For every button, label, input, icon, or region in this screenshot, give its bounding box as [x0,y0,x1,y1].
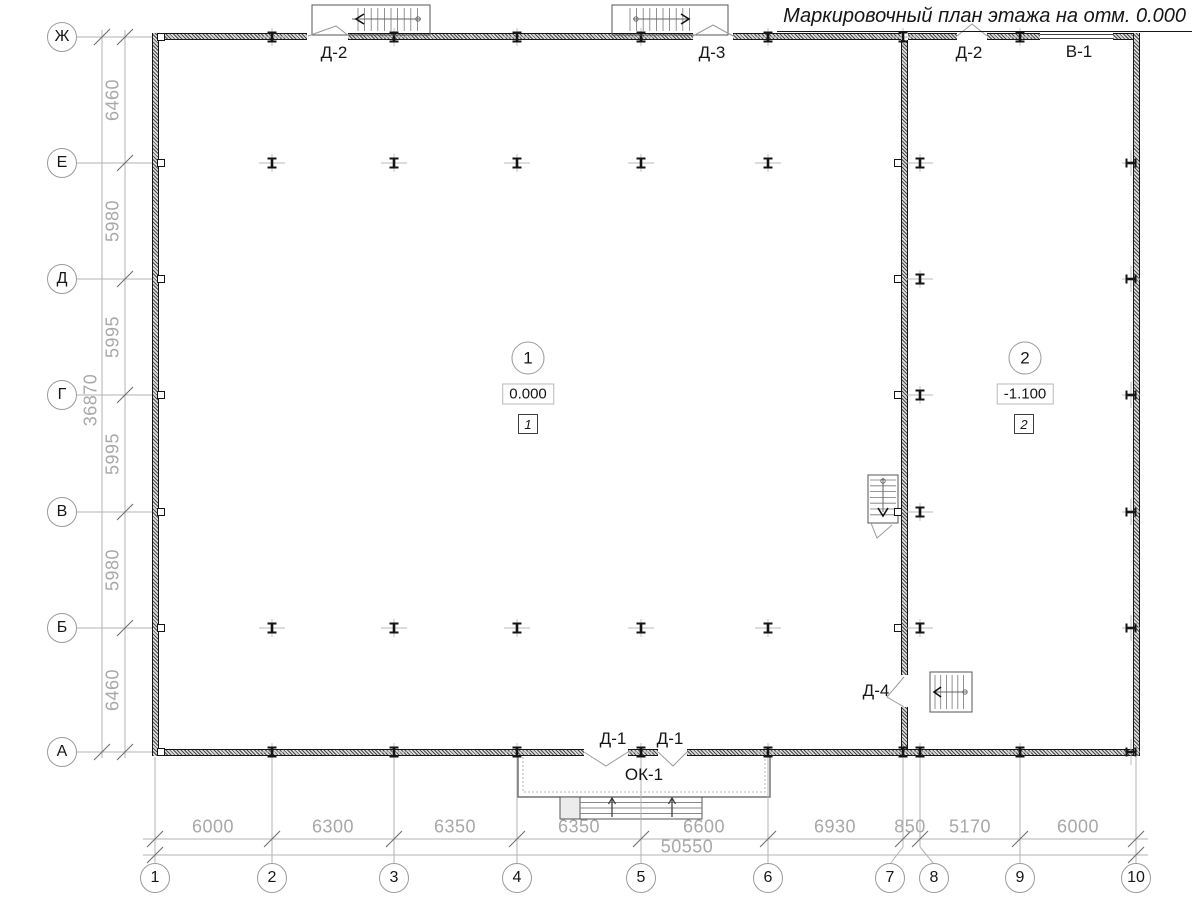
row-axis-bubble-Е: Е [47,148,77,178]
door-swing-top-mid [693,25,733,36]
v-dim-text: 5980 [103,549,124,591]
wall-column-square [894,275,902,283]
h-dim-text: 5170 [949,817,991,838]
door-swing-bottom-left [584,752,628,766]
v-dim-text: 6460 [103,669,124,711]
drawing-title: Маркировочный план этажа на отм. 0.000 [777,5,1192,32]
col-axis-bubble-2: 2 [257,863,287,893]
column-ibeam-marker [259,619,285,637]
column-ibeam-marker [907,270,933,288]
room-tag-box: 2 [1014,414,1034,434]
row-axis-bubble-Д: Д [47,264,77,294]
column-ibeam-marker [381,154,407,172]
row-axis-bubble-Г: Г [47,380,77,410]
column-ibeam-marker [1122,739,1140,765]
column-ibeam-marker [755,619,781,637]
column-ibeam-marker [504,619,530,637]
h-dim-text: 6000 [192,817,234,838]
column-ibeam-marker [628,743,654,761]
h-dim-text: 6300 [312,817,354,838]
wall-column-square [894,391,902,399]
column-ibeam-marker [755,743,781,761]
v-dim-text: 5995 [103,433,124,475]
porch-step-arrow [669,798,676,817]
window-v1 [1040,35,1113,39]
column-ibeam-marker [1122,266,1140,292]
column-ibeam-marker [259,154,285,172]
wall-column-square [894,624,902,632]
door-label-top-mid: Д-3 [699,43,726,63]
col-axis-bubble-8: 8 [919,863,949,893]
column-ibeam-marker [1122,382,1140,408]
column-ibeam-marker [1122,499,1140,525]
room-elevation-box: -1.100 [997,384,1054,405]
porch-step-arrow [609,798,616,817]
v-dim-text: 5995 [103,316,124,358]
wall-column-square [157,159,165,167]
col-axis-bubble-6: 6 [753,863,783,893]
stair-top-right [612,5,728,35]
floor-plan-canvas: ЖЕДГВБА123456789106460598059955995598064… [0,0,1200,900]
wall-column-square [157,748,165,756]
column-ibeam-marker [907,743,933,761]
wall-column-square [157,275,165,283]
column-ibeam-marker [381,743,407,761]
wall-column-square [157,624,165,632]
row-axis-bubble-В: В [47,497,77,527]
column-ibeam-marker [381,28,407,46]
room-tag-box: 1 [518,414,538,434]
column-ibeam-marker [504,743,530,761]
column-ibeam-marker [1007,743,1033,761]
stair-bottom-right [930,672,972,712]
entrance-label-ok1: ОК-1 [625,765,663,785]
column-ibeam-marker [628,619,654,637]
h-dim-text: 6000 [1057,817,1099,838]
door-swing-bottom-right [658,752,687,766]
column-ibeam-marker [1122,615,1140,641]
col-axis-bubble-9: 9 [1005,863,1035,893]
h-dim-text: 6350 [434,817,476,838]
column-ibeam-marker [1122,150,1140,176]
door-label-bottom-left: Д-1 [600,729,627,749]
col-axis-bubble-1: 1 [140,863,170,893]
door-swing-mid-stair [871,523,892,538]
room-number-bubble: 1 [512,342,545,375]
wall-column-square [157,391,165,399]
column-ibeam-marker [504,154,530,172]
window-label-v1: В-1 [1066,42,1092,62]
wall-column-square [157,33,165,41]
column-ibeam-marker [381,619,407,637]
door-label-top-left: Д-2 [321,43,348,63]
row-axis-bubble-Ж: Ж [47,22,77,52]
column-ibeam-marker [259,743,285,761]
h-dim-text: 6600 [683,817,725,838]
v-dim-total-text: 36870 [81,374,102,427]
room-elevation-box: 0.000 [502,384,554,405]
h-dim-text: 6350 [558,817,600,838]
row-axis-bubble-Б: Б [47,613,77,643]
wall-column-square [894,159,902,167]
door-label-interior-d4: Д-4 [863,681,890,701]
col-axis-bubble-4: 4 [502,863,532,893]
h-dim-text: 6930 [814,817,856,838]
col-axis-bubble-10: 10 [1121,863,1151,893]
column-ibeam-marker [628,154,654,172]
v-dim-text: 6460 [103,79,124,121]
wall-column-square [894,508,902,516]
column-ibeam-marker [755,154,781,172]
column-ibeam-marker [907,386,933,404]
column-ibeam-marker [259,28,285,46]
row-axis-bubble-А: А [47,737,77,767]
column-ibeam-marker [907,503,933,521]
door-label-bottom-right: Д-1 [657,729,684,749]
col-axis-bubble-5: 5 [626,863,656,893]
h-dim-total-text: 50550 [661,837,714,858]
column-ibeam-marker [504,28,530,46]
door-swing-interior-d4 [887,677,904,707]
room-number-bubble: 2 [1009,342,1042,375]
col-axis-bubble-3: 3 [379,863,409,893]
col-axis-bubble-7: 7 [875,863,905,893]
door-label-top-right: Д-2 [956,43,983,63]
v-dim-text: 5980 [103,200,124,242]
stair-top-left [312,5,430,35]
column-ibeam-marker [907,154,933,172]
wall-column-square [157,508,165,516]
drawing-overlay [0,0,1200,900]
column-ibeam-marker [907,619,933,637]
h-dim-text: 850 [894,817,926,838]
